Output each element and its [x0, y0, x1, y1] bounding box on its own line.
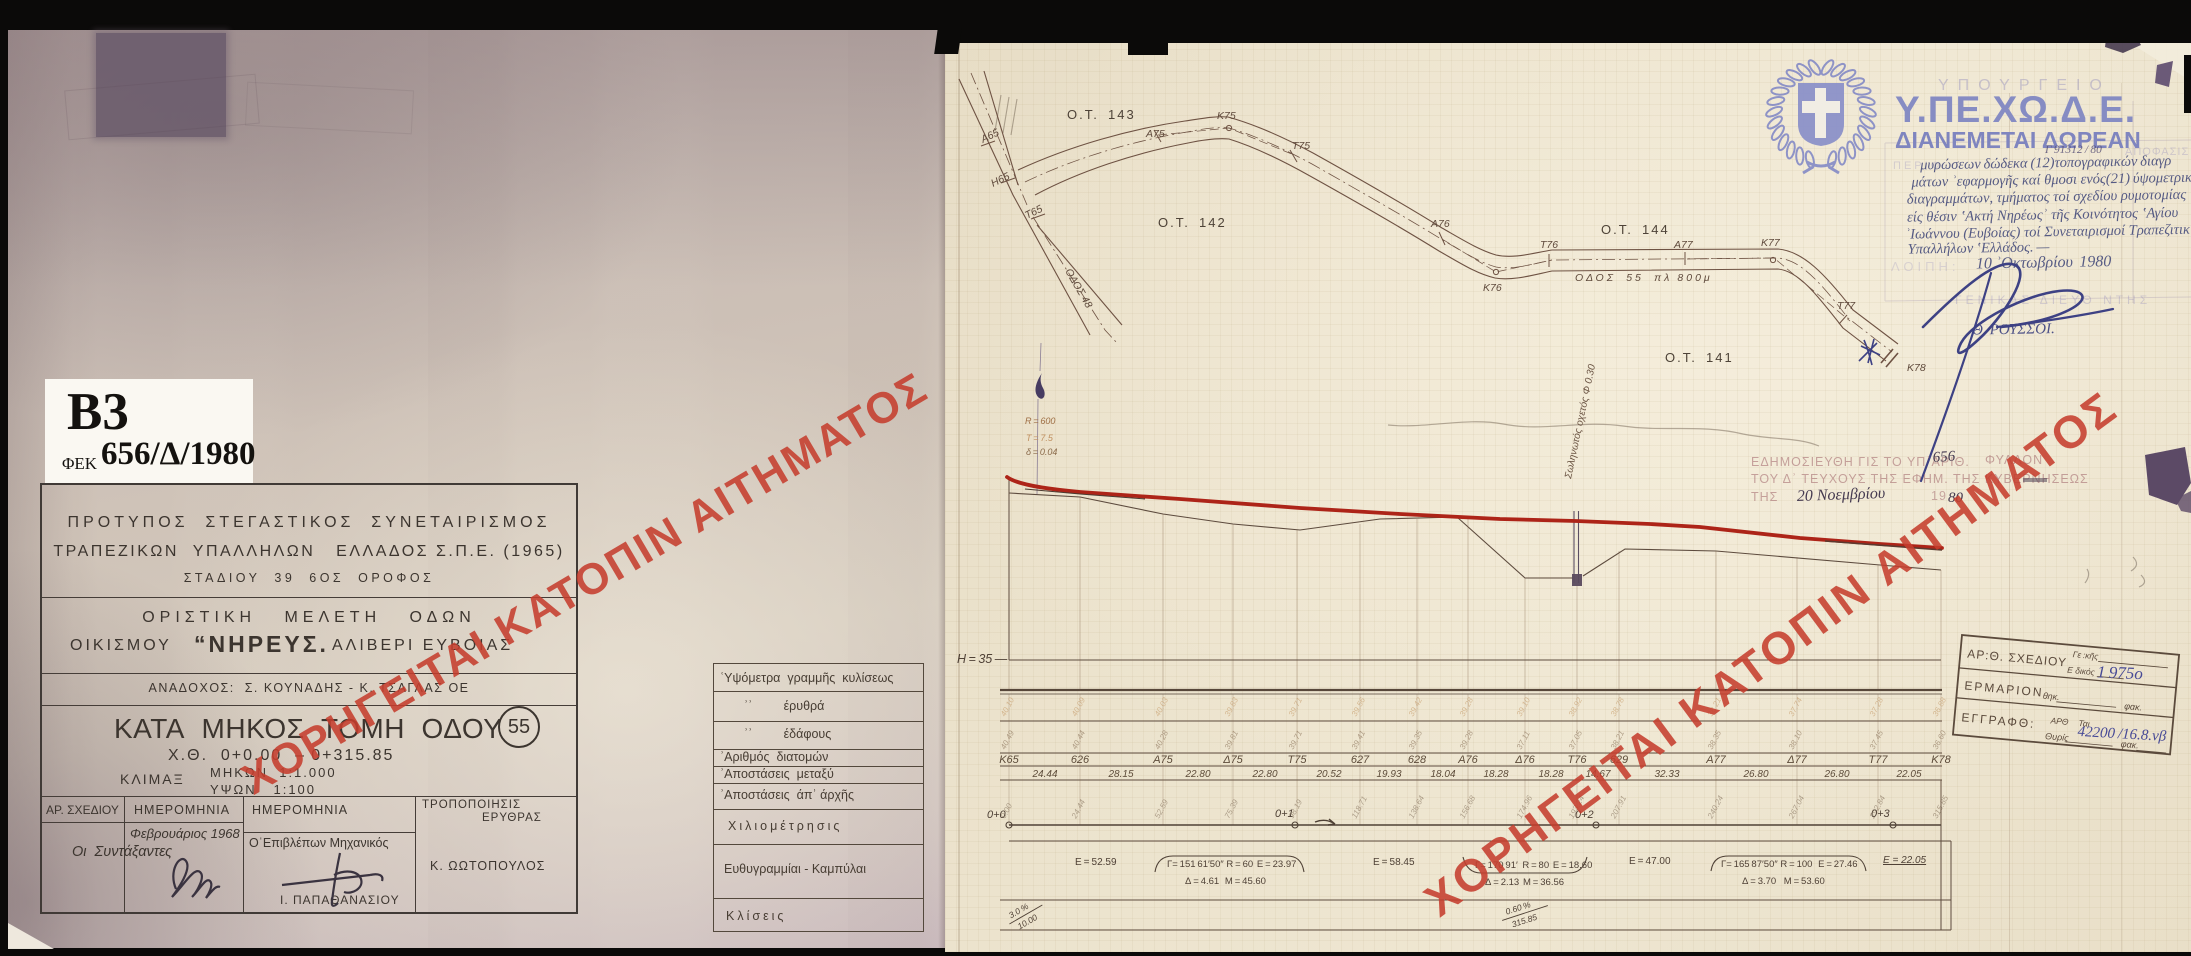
svg-text:Δ76: Δ76 — [1514, 754, 1535, 766]
svg-text:Τ75: Τ75 — [1288, 754, 1308, 766]
svg-text:Α76: Α76 — [1457, 754, 1478, 766]
svg-text:22.05: 22.05 — [1895, 769, 1921, 780]
svg-text:Δ75: Δ75 — [1222, 754, 1243, 766]
svg-text:156.68: 156.68 — [1458, 794, 1478, 820]
svg-text:24.44: 24.44 — [1031, 769, 1057, 780]
svg-text:628: 628 — [1408, 754, 1427, 766]
svg-text:Η = 35 —: Η = 35 — — [957, 652, 1008, 666]
svg-text:52.59: 52.59 — [1153, 798, 1171, 820]
svg-text:40.09: 40.09 — [1070, 696, 1088, 718]
svg-text:40.49: 40.49 — [999, 729, 1017, 751]
svg-text:37.11: 37.11 — [1515, 730, 1532, 751]
svg-text:627: 627 — [1351, 754, 1370, 766]
svg-text:ΛΟΙΠΗ:: ΛΟΙΠΗ: — [1891, 259, 1960, 274]
svg-text:Ε = 58.45: Ε = 58.45 — [1373, 857, 1415, 868]
svg-text:ΕΓΓΡΑΦΘ:: ΕΓΓΡΑΦΘ: — [1961, 710, 2036, 731]
svg-text:ΟΔΟΣ 55 πλ 800μ: ΟΔΟΣ 55 πλ 800μ — [1575, 272, 1713, 284]
svg-text:Υ.ΠΕ.ΧΩ.Δ.Ε.: Υ.ΠΕ.ΧΩ.Δ.Ε. — [1895, 89, 2136, 130]
svg-text:24.44: 24.44 — [1069, 798, 1087, 821]
svg-text:Κ65: Κ65 — [999, 754, 1019, 766]
svg-text:Κ78: Κ78 — [1907, 362, 1926, 374]
svg-text:240.24: 240.24 — [1705, 794, 1725, 821]
svg-text:39.83: 39.83 — [1223, 696, 1241, 718]
svg-text:0+0: 0+0 — [987, 809, 1007, 821]
svg-text:20 Νοεμβρίου: 20 Νοεμβρίου — [1797, 485, 1886, 505]
svg-text:0+3: 0+3 — [1871, 808, 1891, 820]
svg-text:36.88: 36.88 — [1931, 696, 1949, 718]
svg-text:39.35: 39.35 — [1407, 729, 1425, 751]
svg-text:26.80: 26.80 — [1742, 769, 1768, 780]
svg-text:Δ = 4.61 Μ = 45.60: Δ = 4.61 Μ = 45.60 — [1185, 876, 1266, 887]
svg-text:40.44: 40.44 — [1070, 729, 1088, 751]
svg-text:39.10: 39.10 — [1515, 696, 1533, 718]
svg-text:ΤΗΣ: ΤΗΣ — [1751, 490, 1778, 504]
svg-text:Α76: Α76 — [1430, 218, 1450, 230]
svg-text:39.81: 39.81 — [1223, 729, 1240, 751]
svg-text:Γ= 165 87′50″ R = 100 Ε = 27: Γ= 165 87′50″ R = 100 Ε = 27.46 — [1721, 859, 1858, 870]
svg-text:Ο.Τ. 142: Ο.Τ. 142 — [1158, 215, 1227, 230]
svg-text:39.28: 39.28 — [1458, 696, 1476, 718]
svg-text:75.39: 75.39 — [1223, 798, 1241, 820]
svg-text:118.71: 118.71 — [1350, 795, 1369, 820]
svg-text:Δ = 3.70 Μ = 53.60: Δ = 3.70 Μ = 53.60 — [1742, 876, 1825, 887]
svg-text:ΕΡΜΑΡΙΟΝ: ΕΡΜΑΡΙΟΝ — [1964, 678, 2044, 699]
svg-text:36.60: 36.60 — [1931, 729, 1949, 751]
svg-text:37.28: 37.28 — [1868, 696, 1886, 718]
svg-text:42200 /16.8.νβ: 42200 /16.8.νβ — [2077, 724, 2167, 745]
svg-text:267.04: 267.04 — [1786, 794, 1806, 821]
svg-text:22.80: 22.80 — [1184, 769, 1210, 780]
svg-text:315.85: 315.85 — [1931, 794, 1951, 820]
svg-text:Ε = 52.59: Ε = 52.59 — [1075, 857, 1117, 868]
svg-text:32.33: 32.33 — [1654, 769, 1679, 780]
svg-text:26.80: 26.80 — [1823, 769, 1849, 780]
svg-text:δ = 0.04: δ = 0.04 — [1026, 447, 1057, 457]
svg-text:Α77: Α77 — [1673, 239, 1694, 251]
svg-text:Τ65: Τ65 — [1023, 203, 1045, 222]
svg-text:Η65: Η65 — [989, 170, 1012, 189]
svg-text:Κ76: Κ76 — [1483, 282, 1502, 294]
svg-text:Κ78: Κ78 — [1931, 754, 1951, 766]
svg-text:Τ76: Τ76 — [1540, 239, 1558, 251]
svg-text:656: 656 — [1932, 448, 1956, 466]
svg-text:38.10: 38.10 — [1787, 729, 1805, 751]
svg-text:Α77: Α77 — [1705, 754, 1726, 766]
svg-text:Ε = 47.00: Ε = 47.00 — [1629, 856, 1671, 867]
svg-text:28.15: 28.15 — [1107, 769, 1133, 780]
svg-text:R = 600: R = 600 — [1025, 416, 1055, 426]
svg-text:39.71: 39.71 — [1287, 696, 1304, 718]
svg-text:19.93: 19.93 — [1376, 769, 1401, 780]
svg-text:18.04: 18.04 — [1430, 769, 1455, 780]
svg-text:39.28: 39.28 — [1458, 729, 1476, 751]
svg-text:ΑΡ:Θ. ΣΧΕΔΙΟΥ: ΑΡ:Θ. ΣΧΕΔΙΟΥ — [1967, 647, 2068, 670]
svg-text:10 ʾΟκτωβρίου 1980: 10 ʾΟκτωβρίου 1980 — [1976, 253, 2112, 272]
svg-text:37.45: 37.45 — [1868, 729, 1886, 751]
svg-text:Τ75: Τ75 — [1292, 140, 1310, 152]
svg-text:39.41: 39.41 — [1350, 729, 1367, 751]
svg-text:Ο.Τ. 141: Ο.Τ. 141 — [1665, 350, 1734, 365]
svg-text:18.28: 18.28 — [1483, 769, 1508, 780]
svg-text:Κ77: Κ77 — [1761, 237, 1781, 249]
svg-text:Γ= 151 61′50″ R = 60 Ε = 23.9: Γ= 151 61′50″ R = 60 Ε = 23.97 — [1167, 859, 1296, 870]
svg-text:Σωληνωτός οχετός Φ 0.30: Σωληνωτός οχετός Φ 0.30 — [1562, 363, 1598, 481]
svg-text:40.03: 40.03 — [1153, 696, 1171, 718]
svg-text:Γε :κῆς: Γε :κῆς — [2072, 649, 2099, 661]
svg-text:315.85: 315.85 — [1510, 912, 1538, 930]
svg-text:38.78: 38.78 — [1609, 696, 1627, 718]
svg-text:Τ = 7.5: Τ = 7.5 — [1026, 433, 1054, 443]
svg-text:θηκ.: θηκ. — [2042, 691, 2060, 702]
svg-text:ΔΙΑΝΕΜΕΤΑΙ ΔΩΡΕΑΝ: ΔΙΑΝΕΜΕΤΑΙ ΔΩΡΕΑΝ — [1895, 127, 2141, 153]
svg-text:138.64: 138.64 — [1407, 794, 1427, 820]
svg-text:39.71: 39.71 — [1287, 729, 1304, 751]
svg-text:1 975ο: 1 975ο — [2097, 662, 2144, 683]
svg-text:ΑΡΘ: ΑΡΘ — [2049, 715, 2069, 727]
svg-text:40.10: 40.10 — [999, 696, 1017, 718]
svg-text:φακ.: φακ. — [2124, 701, 2143, 713]
svg-text:Θυρίς: Θυρίς — [2045, 731, 2070, 743]
svg-text:Κ75: Κ75 — [1217, 110, 1236, 122]
svg-text:Α75: Α75 — [1145, 128, 1165, 140]
svg-text:Ο.Τ. 144: Ο.Τ. 144 — [1601, 222, 1670, 237]
svg-text:Τ77: Τ77 — [1837, 300, 1856, 312]
svg-text:37.74: 37.74 — [1787, 696, 1805, 718]
svg-text:39.42: 39.42 — [1407, 696, 1425, 718]
svg-text:Τ77: Τ77 — [1869, 754, 1889, 766]
svg-text:37.05: 37.05 — [1567, 729, 1585, 751]
svg-text:38.92: 38.92 — [1567, 696, 1585, 718]
svg-text:22.80: 22.80 — [1251, 769, 1277, 780]
svg-text:20.52: 20.52 — [1315, 769, 1341, 780]
svg-text:Ο.Τ. 143: Ο.Τ. 143 — [1067, 107, 1136, 122]
svg-text:Δ77: Δ77 — [1786, 754, 1807, 766]
svg-text:Ε δικός: Ε δικός — [2067, 665, 2096, 678]
svg-text:Ε = 22.05: Ε = 22.05 — [1883, 855, 1927, 866]
svg-text:40.28: 40.28 — [1153, 729, 1171, 751]
svg-text:Θ. ΡΟΥΣΣΟΙ.: Θ. ΡΟΥΣΣΟΙ. — [1972, 321, 2055, 338]
svg-text:39.56: 39.56 — [1350, 696, 1368, 718]
svg-text:Α75: Α75 — [1152, 754, 1173, 766]
svg-text:0+1: 0+1 — [1275, 808, 1294, 820]
svg-text:626: 626 — [1071, 754, 1090, 766]
